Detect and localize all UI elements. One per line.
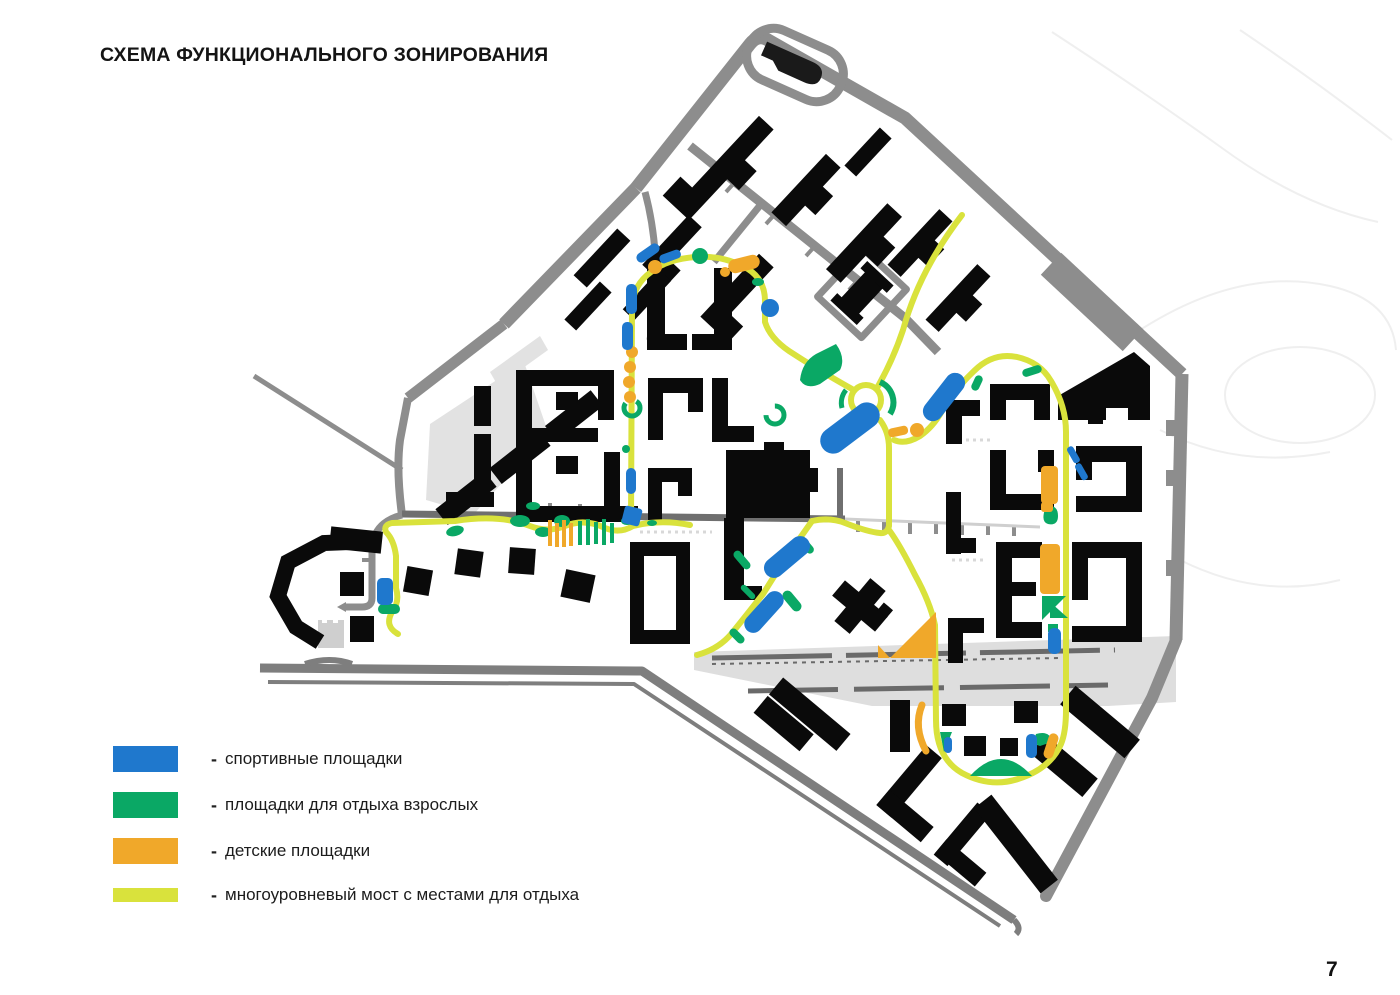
- gray-structure: [1041, 253, 1143, 351]
- sports-swatch: [113, 745, 179, 773]
- legend-label-sports: спортивные площадки: [225, 749, 402, 769]
- bridge-swatch: [113, 881, 179, 909]
- legend-dash: -: [203, 885, 225, 906]
- legend-label-children: детские площадки: [225, 841, 370, 861]
- legend-item-adult-rest: - площадки для отдыха взрослых: [113, 791, 478, 819]
- legend-item-children: - детские площадки: [113, 837, 370, 865]
- children-swatch: [113, 837, 179, 865]
- legend-dash: -: [203, 841, 225, 862]
- legend-dash: -: [203, 749, 225, 770]
- legend-label-bridge: многоуровневый мост с местами для отдыха: [225, 885, 579, 905]
- parking-loop: [738, 20, 851, 110]
- legend-label-adult-rest: площадки для отдыха взрослых: [225, 795, 478, 815]
- legend-dash: -: [203, 795, 225, 816]
- page-title: СХЕМА ФУНКЦИОНАЛЬНОГО ЗОНИРОВАНИЯ: [100, 44, 548, 67]
- page-number: 7: [1326, 958, 1338, 982]
- adult-rest-swatch: [113, 791, 179, 819]
- legend-item-bridge: - многоуровневый мост с местами для отды…: [113, 881, 579, 909]
- legend-item-sports: - спортивные площадки: [113, 745, 402, 773]
